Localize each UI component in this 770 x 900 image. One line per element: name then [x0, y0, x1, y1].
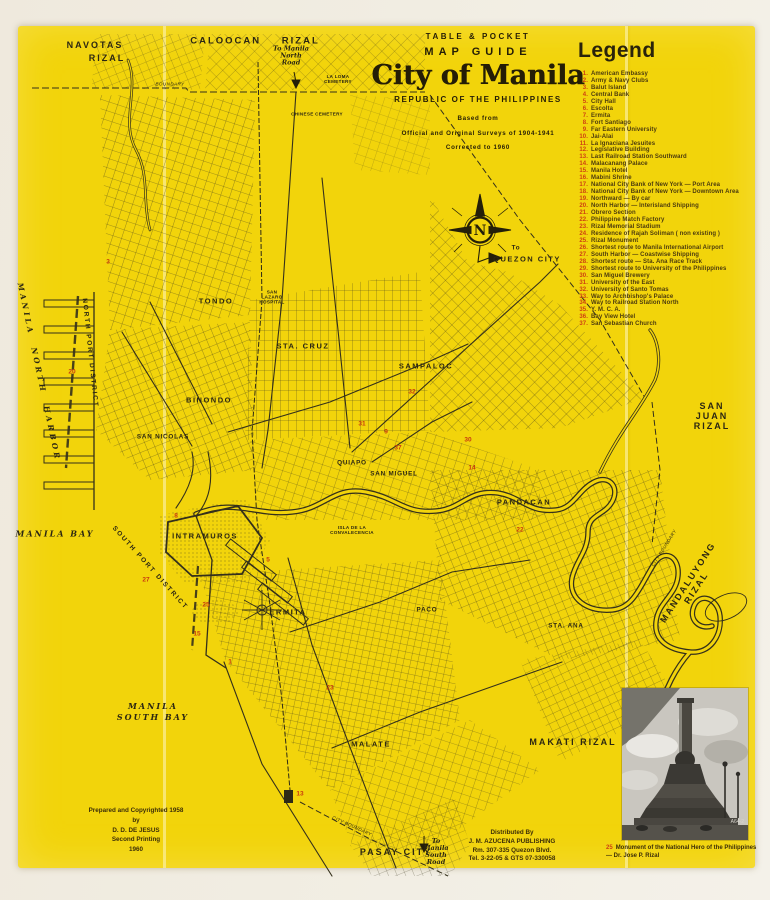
legend-item-number: 5. — [578, 99, 588, 106]
legend-item-label: Last Railroad Station Southward — [591, 154, 687, 161]
title-city-of-manila: City of Manila — [366, 60, 590, 91]
distributor-line: Rm. 307-335 Quezon Blvd. — [422, 847, 602, 856]
legend-item: 26.Shortest route to Manila Internationa… — [578, 245, 758, 252]
legend-item-label: Escolta — [591, 106, 613, 113]
legend-item: 10.Jai-Alai — [578, 134, 758, 141]
legend-item-number: 37. — [578, 321, 588, 328]
legend-item-label: Legislative Building — [591, 147, 650, 154]
legend-item-label: Bay View Hotel — [591, 314, 635, 321]
legend-item-label: Central Bank — [591, 92, 629, 99]
legend-item-label: Jai-Alai — [591, 134, 613, 141]
legend-item: 3.Balut Island — [578, 85, 758, 92]
legend-item: 9.Far Eastern University — [578, 127, 758, 134]
legend-item-number: 24. — [578, 231, 588, 238]
legend-item: 11.La Ignaciana Jesuites — [578, 141, 758, 148]
legend-item: 16.Mabini Shrine — [578, 175, 758, 182]
legend-item: 5.City Hall — [578, 99, 758, 106]
photo-caption: 25Monument of the National Hero of the P… — [606, 845, 758, 860]
legend-item-label: Rizal Monument — [591, 238, 638, 245]
legend-item-number: 23. — [578, 224, 588, 231]
legend-item-label: Fort Santiago — [591, 120, 631, 127]
legend-item: 18.National City Bank of New York — Down… — [578, 189, 758, 196]
legend-item-label: Ermita — [591, 113, 610, 120]
legend-item: 2.Army & Navy Clubs — [578, 78, 758, 85]
title-republic: REPUBLIC OF THE PHILIPPINES — [366, 95, 590, 104]
legend-item-label: South Harbor — Coastwise Shipping — [591, 252, 699, 259]
credits-line: D. D. DE JESUS — [68, 826, 204, 836]
legend-item: 1.American Embassy — [578, 71, 758, 78]
legend-item: 33.Way to Archbishop's Palace — [578, 294, 758, 301]
legend-item-label: San Miguel Brewery — [591, 273, 650, 280]
photo-caption-text: Monument of the National Hero of the Phi… — [606, 845, 756, 859]
rizal-monument-photo-art: A64-2 — [622, 688, 748, 840]
legend-item: 8.Fort Santiago — [578, 120, 758, 127]
legend-item-label: University of Santo Tomas — [591, 287, 669, 294]
legend-item-number: 6. — [578, 106, 588, 113]
legend-item-label: Army & Navy Clubs — [591, 78, 648, 85]
legend-item-label: Malacanang Palace — [591, 161, 648, 168]
legend-item: 6.Escolta — [578, 106, 758, 113]
legend-item-number: 19. — [578, 196, 588, 203]
legend-item: 32.University of Santo Tomas — [578, 287, 758, 294]
legend-item-number: 4. — [578, 92, 588, 99]
title-block: TABLE & POCKET MAP GUIDE City of Manila … — [366, 32, 590, 151]
legend-item: 28.Shortest route — Sta. Ana Race Track — [578, 259, 758, 266]
credits-block: Prepared and Copyrighted 1958 by D. D. D… — [68, 806, 204, 855]
legend-item-number: 17. — [578, 182, 588, 189]
legend-item: 30.San Miguel Brewery — [578, 273, 758, 280]
legend-item-number: 9. — [578, 127, 588, 134]
distributor-line: Distributed By — [422, 829, 602, 838]
legend-item: 21.Obrero Section — [578, 210, 758, 217]
legend-heading: Legend — [578, 39, 758, 63]
legend-item-number: 21. — [578, 210, 588, 217]
legend-item-label: Rizal Memorial Stadium — [591, 224, 661, 231]
legend-item: 23.Rizal Memorial Stadium — [578, 224, 758, 231]
legend-item-label: Balut Island — [591, 85, 626, 92]
title-corrected: Corrected to 1960 — [366, 144, 590, 151]
legend-item: 13.Last Railroad Station Southward — [578, 154, 758, 161]
legend-item-label: Shortest route — Sta. Ana Race Track — [591, 259, 702, 266]
legend-item: 15.Manila Hotel — [578, 168, 758, 175]
legend-item-label: North Harbor — Interisland Shipping — [591, 203, 699, 210]
credits-line: Prepared and Copyrighted 1958 — [68, 806, 204, 816]
distributor-line: Tel. 3-22-05 & GTS 07-330058 — [422, 855, 602, 864]
legend-item-number: 18. — [578, 189, 588, 196]
legend-item: 14.Malacanang Palace — [578, 161, 758, 168]
legend-item: 4.Central Bank — [578, 92, 758, 99]
legend-item: 7.Ermita — [578, 113, 758, 120]
legend-item-number: 14. — [578, 161, 588, 168]
legend-item-number: 26. — [578, 245, 588, 252]
legend-item: 12.Legislative Building — [578, 147, 758, 154]
legend-item: 36.Bay View Hotel — [578, 314, 758, 321]
legend-item-label: Shortest route to Manila International A… — [591, 245, 723, 252]
legend-item-label: San Sebastian Church — [591, 321, 657, 328]
legend-item: 22.Philippine Match Factory — [578, 217, 758, 224]
credits-line: 1960 — [68, 845, 204, 855]
legend-item: 35.Y. M. C. A. — [578, 307, 758, 314]
legend-item-label: American Embassy — [591, 71, 648, 78]
map-sheet-page: N TABLE & POCKET MAP GUIDE City of Manil… — [0, 0, 770, 900]
title-based-from: Based from — [366, 115, 590, 122]
legend-item-number: 27. — [578, 252, 588, 259]
legend-item-number: 8. — [578, 120, 588, 127]
legend-item-number: 1. — [578, 71, 588, 78]
legend-item: 25.Rizal Monument — [578, 238, 758, 245]
legend-item-number: 10. — [578, 134, 588, 141]
legend-item-number: 16. — [578, 175, 588, 182]
legend-item-number: 22. — [578, 217, 588, 224]
legend-item-label: Mabini Shrine — [591, 175, 632, 182]
legend-item: 19.Northward — By car — [578, 196, 758, 203]
legend-item-label: La Ignaciana Jesuites — [591, 141, 655, 148]
legend-item-label: Y. M. C. A. — [591, 307, 621, 314]
legend-item-number: 2. — [578, 78, 588, 85]
legend-item: 37.San Sebastian Church — [578, 321, 758, 328]
legend-item-label: National City Bank of New York — Port Ar… — [591, 182, 720, 189]
compass-n-letter: N — [474, 223, 487, 239]
legend-item: 29.Shortest route to University of the P… — [578, 266, 758, 273]
svg-text:A64-2: A64-2 — [731, 819, 745, 825]
legend-item: 27.South Harbor — Coastwise Shipping — [578, 252, 758, 259]
legend-item-label: Obrero Section — [591, 210, 636, 217]
legend-item-number: 28. — [578, 259, 588, 266]
credits-line: Second Printing — [68, 835, 204, 845]
legend-item-label: University of the East — [591, 280, 655, 287]
legend-item-number: 13. — [578, 154, 588, 161]
legend-item-number: 3. — [578, 85, 588, 92]
legend-item-label: Manila Hotel — [591, 168, 628, 175]
title-table-pocket: TABLE & POCKET — [366, 32, 590, 41]
title-map-guide: MAP GUIDE — [366, 46, 590, 58]
legend-item-number: 32. — [578, 287, 588, 294]
legend-item: 34.Way to Railroad Station North — [578, 300, 758, 307]
legend-item-number: 33. — [578, 294, 588, 301]
legend-item-label: Far Eastern University — [591, 127, 657, 134]
legend-item-label: Philippine Match Factory — [591, 217, 664, 224]
legend-item-number: 30. — [578, 273, 588, 280]
legend-item-label: Residence of Rajah Soliman ( non existin… — [591, 231, 720, 238]
legend-list: 1.American Embassy2.Army & Navy Clubs3.B… — [578, 71, 758, 328]
legend-item: 20.North Harbor — Interisland Shipping — [578, 203, 758, 210]
legend-item: 24.Residence of Rajah Soliman ( non exis… — [578, 231, 758, 238]
legend-item-number: 34. — [578, 300, 588, 307]
legend-item-number: 20. — [578, 203, 588, 210]
legend-item-number: 25. — [578, 238, 588, 245]
legend-item: 31.University of the East — [578, 280, 758, 287]
legend-item-number: 15. — [578, 168, 588, 175]
legend-item-number: 7. — [578, 113, 588, 120]
legend-item: 17.National City Bank of New York — Port… — [578, 182, 758, 189]
legend-item-label: National City Bank of New York — Downtow… — [591, 189, 739, 196]
title-surveys: Official and Original Surveys of 1904-19… — [366, 130, 590, 137]
legend-item-number: 31. — [578, 280, 588, 287]
legend: Legend 1.American Embassy2.Army & Navy C… — [578, 39, 758, 328]
legend-item-number: 36. — [578, 314, 588, 321]
legend-item-label: Way to Archbishop's Palace — [591, 294, 673, 301]
legend-item-label: Way to Railroad Station North — [591, 300, 679, 307]
rizal-monument-photo: A64-2 — [622, 688, 748, 840]
legend-item-label: Northward — By car — [591, 196, 650, 203]
distributor-line: J. M. AZUCENA PUBLISHING — [422, 838, 602, 847]
legend-item-label: Shortest route to University of the Phil… — [591, 266, 726, 273]
distributor-block: Distributed By J. M. AZUCENA PUBLISHING … — [422, 829, 602, 864]
legend-item-label: City Hall — [591, 99, 616, 106]
credits-line: by — [68, 816, 204, 826]
legend-item-number: 12. — [578, 147, 588, 154]
legend-item-number: 35. — [578, 307, 588, 314]
legend-item-number: 29. — [578, 266, 588, 273]
legend-item-number: 11. — [578, 141, 588, 148]
photo-caption-number: 25 — [606, 845, 613, 851]
